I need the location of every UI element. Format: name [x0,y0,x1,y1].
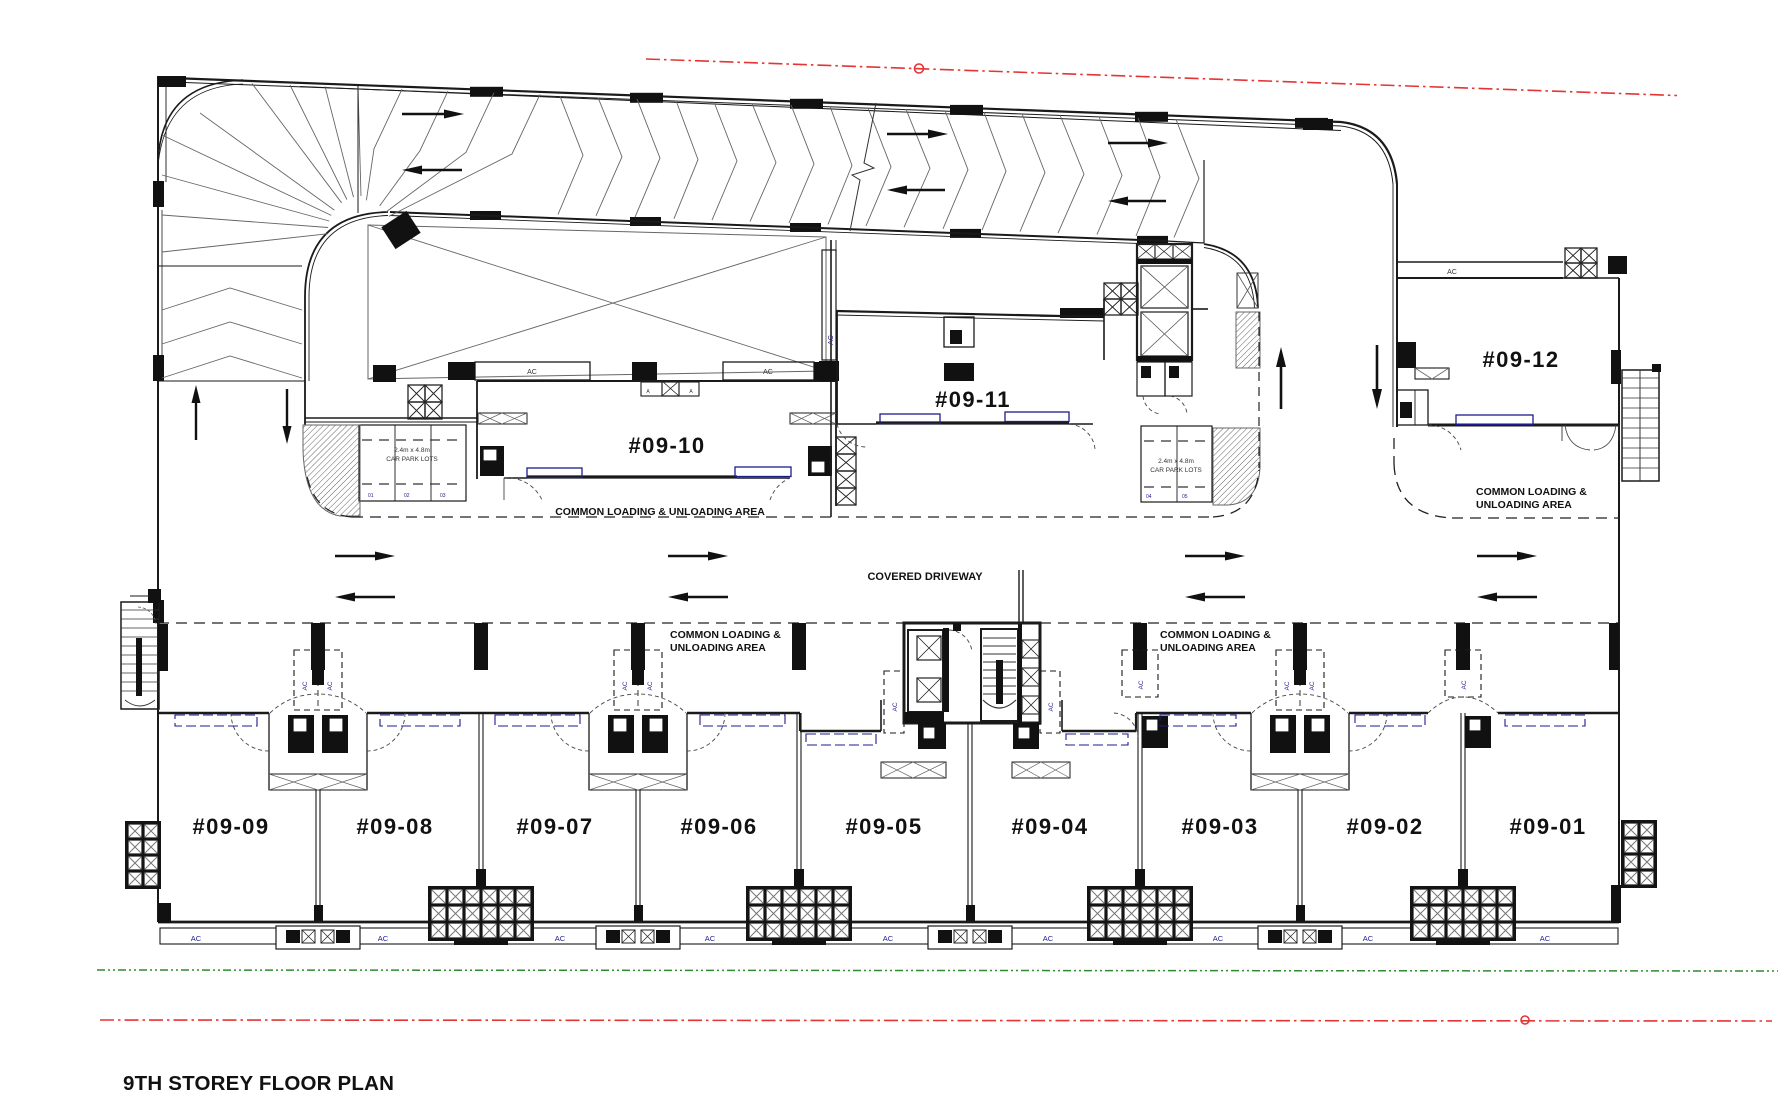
svg-text:#09-08: #09-08 [357,814,434,839]
svg-text:AC: AC [763,369,773,376]
svg-text:AC: AC [1461,680,1468,689]
svg-text:AC: AC [527,369,537,376]
svg-text:CAR PARK LOTS: CAR PARK LOTS [386,456,438,463]
svg-text:UNLOADING AREA: UNLOADING AREA [670,642,766,654]
svg-text:AC: AC [555,934,566,943]
svg-text:2.4m x 4.8m: 2.4m x 4.8m [1158,458,1194,465]
svg-text:01: 01 [368,493,374,499]
svg-text:COMMON LOADING &: COMMON LOADING & [670,629,781,641]
svg-text:AC: AC [1447,269,1457,276]
svg-text:CAR PARK LOTS: CAR PARK LOTS [1150,467,1202,474]
svg-text:#09-12: #09-12 [1483,347,1560,372]
svg-text:AC: AC [883,934,894,943]
svg-text:COMMON LOADING & UNLOADING ARE: COMMON LOADING & UNLOADING AREA [555,506,765,518]
svg-text:AC: AC [1540,934,1551,943]
svg-text:AC: AC [647,681,654,690]
svg-text:AC: AC [1309,681,1316,690]
svg-text:#09-10: #09-10 [629,433,706,458]
svg-text:04: 04 [1146,494,1152,500]
svg-text:UNLOADING AREA: UNLOADING AREA [1476,499,1572,511]
svg-text:AC: AC [302,681,309,690]
svg-text:COVERED DRIVEWAY: COVERED DRIVEWAY [867,571,983,583]
svg-text:UNLOADING AREA: UNLOADING AREA [1160,642,1256,654]
svg-text:AC: AC [705,934,716,943]
svg-text:#09-09: #09-09 [193,814,270,839]
svg-text:02: 02 [404,493,410,499]
svg-text:AC: AC [1043,934,1054,943]
svg-text:#09-06: #09-06 [681,814,758,839]
svg-text:AC: AC [378,934,389,943]
svg-text:05: 05 [1182,494,1188,500]
svg-text:03: 03 [440,493,446,499]
svg-text:AC: AC [1048,702,1055,711]
svg-text:AC: AC [892,702,899,711]
svg-text:AC: AC [828,335,835,345]
svg-text:AC: AC [1138,680,1145,689]
svg-text:AC: AC [1213,934,1224,943]
svg-text:#09-11: #09-11 [935,387,1011,412]
svg-text:2.4m x 4.8m: 2.4m x 4.8m [394,447,430,454]
svg-text:9TH STOREY FLOOR PLAN: 9TH STOREY FLOOR PLAN [123,1072,394,1095]
svg-text:#09-03: #09-03 [1182,814,1259,839]
svg-text:COMMON LOADING &: COMMON LOADING & [1160,629,1271,641]
svg-text:AC: AC [191,934,202,943]
svg-text:AC: AC [622,681,629,690]
svg-text:#09-04: #09-04 [1012,814,1089,839]
svg-text:#09-05: #09-05 [846,814,923,839]
svg-text:COMMON LOADING &: COMMON LOADING & [1476,486,1587,498]
svg-text:#09-02: #09-02 [1347,814,1424,839]
svg-text:#09-07: #09-07 [517,814,594,839]
svg-text:AC: AC [1363,934,1374,943]
svg-text:AC: AC [1284,681,1291,690]
svg-text:#09-01: #09-01 [1510,814,1587,839]
svg-text:AC: AC [327,681,334,690]
